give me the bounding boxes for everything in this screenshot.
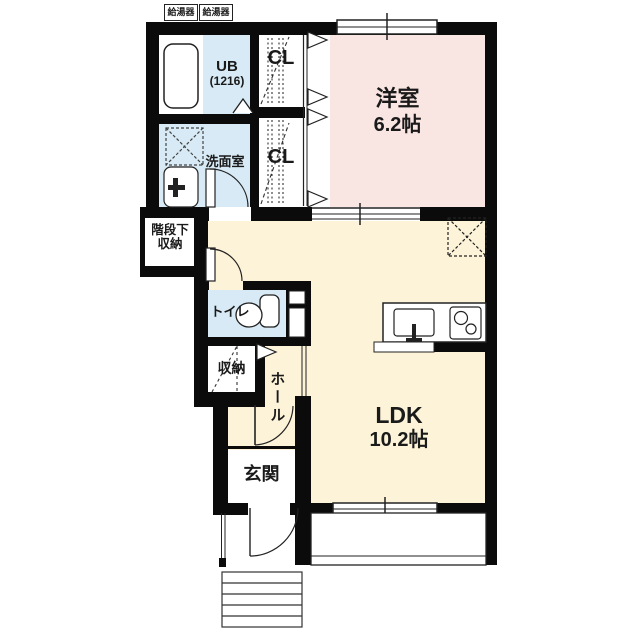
washroom-label: 洗面室 — [196, 155, 254, 170]
storage-label: 収納 — [208, 360, 255, 376]
washroom-door-arc — [210, 169, 248, 207]
stair-storage-label: 階段下 収納 — [141, 223, 199, 252]
western-room-size: 6.2帖 — [320, 114, 475, 137]
hall-ldk-boundary — [302, 346, 306, 396]
closet-bottom-label: CL — [259, 146, 303, 169]
bath-door-icon — [233, 99, 253, 113]
toilet-cabinet-icon — [289, 291, 305, 337]
western-room-label: 洋室 — [320, 86, 475, 111]
hall-label: ホール — [268, 352, 285, 444]
water-heater-label-right: 給湯器 — [199, 4, 233, 21]
toilet-tank-icon — [260, 295, 279, 327]
window-top — [337, 13, 437, 40]
porch — [219, 513, 226, 567]
washroom-door-leaf — [206, 169, 215, 207]
toilet-door-leaf — [206, 248, 215, 281]
terrace — [311, 513, 486, 565]
sliding-partition-symbol — [312, 203, 420, 225]
counter-ledge — [374, 342, 434, 352]
closet-top-label: CL — [259, 47, 303, 70]
unit-bath-size: (1216) — [199, 75, 255, 89]
floor-plan: 給湯器 給湯器 UB (1216) CL CL 洋室 6.2帖 洗面室 階段下 … — [0, 0, 640, 640]
ldk-size: 10.2帖 — [325, 429, 473, 452]
water-heater-label-left: 給湯器 — [164, 4, 198, 21]
refrigerator-space-icon — [448, 218, 486, 256]
unit-bath-label: UB (1216) — [199, 58, 255, 89]
bathtub-icon — [164, 44, 198, 108]
entrance-label: 玄関 — [228, 464, 295, 485]
entrance-steps — [222, 572, 302, 627]
toilet-label: トイレ — [204, 305, 256, 320]
front-door-arc — [250, 508, 298, 556]
ldk-label: LDK — [325, 402, 473, 428]
